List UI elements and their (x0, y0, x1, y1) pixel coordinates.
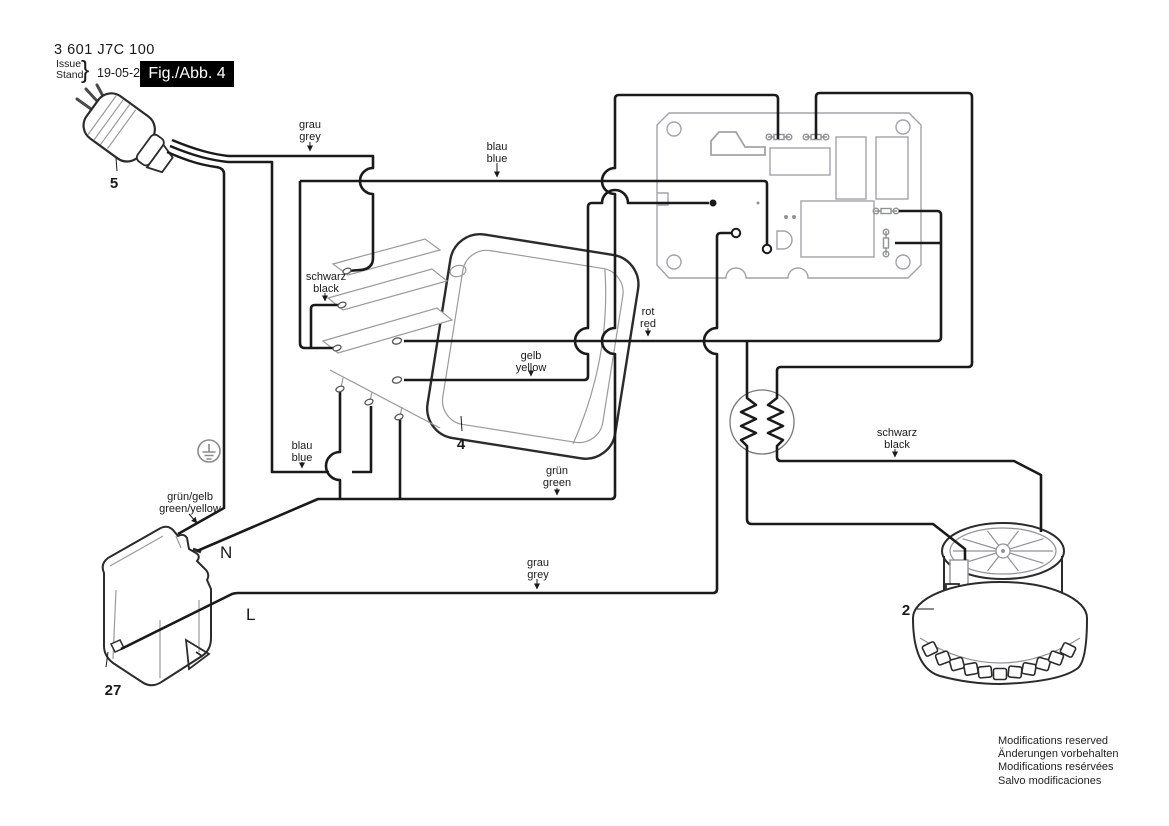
pcb-trace (711, 132, 765, 155)
label-gelb-2: yellow (516, 362, 547, 374)
label-blau-top-1: blau (487, 141, 508, 153)
pcb-solder-dot (757, 202, 760, 205)
label-grau-lower-2: grey (527, 569, 549, 581)
pcb (657, 113, 921, 278)
solder-pad (763, 245, 771, 253)
pcb-hole (667, 122, 681, 136)
appliance-connector (103, 527, 211, 686)
wire-schwarz-pcb-to-motor (768, 93, 1041, 532)
label-schwarz-switch-2: black (313, 283, 339, 295)
wire-blau-to-pcb (300, 181, 767, 245)
pcb-capacitor (876, 137, 908, 199)
pcb-hole (896, 120, 910, 134)
pcb-hole (667, 255, 681, 269)
switch-housing (423, 230, 643, 463)
wiring-diagram-canvas: grau grey blau blue schwarz black gelb y… (0, 0, 1169, 826)
pcb-relay (770, 148, 830, 175)
pcb-relay (801, 201, 874, 257)
ref-switch: 4 (457, 436, 466, 453)
wiring-diagram-page: 3 601 J7C 100 Issue Stand } 19-05-29 Fig… (0, 0, 1169, 826)
pcb-outline (657, 113, 921, 278)
label-blau-lower-2: blue (292, 452, 313, 464)
wire-rot-to-motor (741, 341, 965, 560)
ref-motor: 2 (902, 602, 910, 619)
pcb-terminal (873, 208, 899, 214)
label-grau-lower-1: grau (527, 557, 549, 569)
solder-pad (732, 229, 740, 237)
label-schwarz-motor-2: black (884, 439, 910, 451)
label-grau-top-1: grau (299, 119, 321, 131)
label-gelb-1: gelb (521, 350, 542, 362)
label-gruen-1: grün (546, 465, 568, 477)
label-blau-lower-1: blau (292, 440, 313, 452)
label-rot-2: red (640, 318, 656, 330)
mains-plug (77, 85, 228, 184)
label-schwarz-motor-1: schwarz (877, 427, 917, 439)
pcb-solder-dot (792, 215, 796, 219)
wire-switch-to-gruen-rail (326, 390, 340, 499)
pcb-capacitor (836, 137, 866, 199)
label-blau-top-2: blue (487, 153, 508, 165)
label-gruen-gelb-2: green/yellow (159, 503, 221, 515)
solder-dot (710, 200, 717, 207)
label-rot-1: rot (642, 306, 655, 318)
wire-blau-plug-left (228, 162, 329, 472)
wire-blau-plug-right (352, 406, 371, 472)
earth-symbol (198, 440, 220, 462)
wire-blau-switch-stub (300, 181, 337, 348)
switch-plate (323, 308, 452, 353)
terminal-l: L (246, 605, 255, 624)
label-gruen-gelb-1: grün/gelb (167, 491, 213, 503)
terminal-n: N (220, 543, 232, 562)
pcb-hole (896, 255, 910, 269)
label-grau-top-2: grey (299, 131, 321, 143)
ref-connector: 27 (105, 682, 122, 699)
pcb-d-pad (777, 231, 792, 249)
pcb-solder-dot (784, 215, 788, 219)
twisted-lead-ring (730, 390, 794, 454)
pcb-terminal (883, 229, 889, 257)
motor (913, 523, 1087, 684)
label-schwarz-switch-1: schwarz (306, 271, 346, 283)
label-gruen-2: green (543, 477, 571, 489)
wire-gruen-gelb (178, 167, 224, 534)
power-cord (167, 140, 228, 167)
ref-plug: 5 (110, 175, 118, 192)
